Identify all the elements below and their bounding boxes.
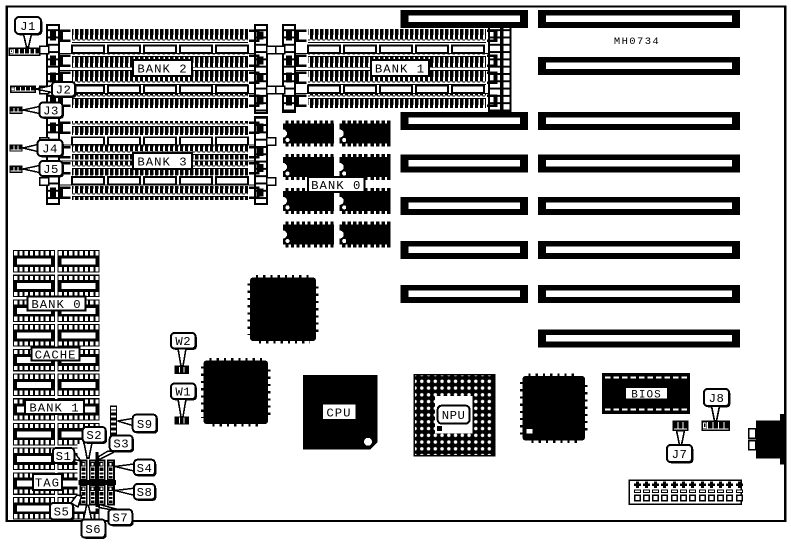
svg-text:J8: J8 [709, 392, 725, 406]
svg-text:MH0734: MH0734 [614, 36, 660, 48]
svg-text:W2: W2 [175, 335, 191, 349]
svg-text:S4: S4 [137, 462, 153, 476]
svg-text:S5: S5 [54, 506, 70, 520]
svg-text:J7: J7 [672, 448, 688, 462]
svg-text:S3: S3 [113, 438, 129, 452]
svg-text:S9: S9 [137, 418, 153, 432]
svg-text:S1: S1 [56, 450, 72, 464]
svg-text:J3: J3 [43, 104, 59, 118]
svg-text:S8: S8 [137, 486, 153, 500]
svg-text:J1: J1 [20, 20, 36, 34]
svg-text:W1: W1 [175, 386, 191, 400]
svg-text:J5: J5 [43, 163, 59, 177]
svg-text:CPU: CPU [326, 406, 351, 420]
svg-text:BANK 2: BANK 2 [137, 62, 187, 76]
svg-text:BANK 1: BANK 1 [29, 401, 79, 415]
svg-text:NPU: NPU [442, 409, 466, 423]
svg-text:S2: S2 [86, 429, 102, 443]
svg-text:CACHE: CACHE [35, 348, 77, 362]
svg-text:J2: J2 [56, 84, 72, 98]
svg-text:BANK 1: BANK 1 [375, 62, 425, 76]
svg-text:BANK 3: BANK 3 [137, 155, 187, 169]
svg-text:S6: S6 [85, 523, 101, 537]
svg-text:BANK 0: BANK 0 [311, 179, 361, 193]
svg-text:S7: S7 [112, 512, 128, 526]
svg-text:TAG: TAG [35, 476, 60, 490]
svg-text:J4: J4 [42, 142, 58, 156]
svg-text:BANK 0: BANK 0 [31, 298, 81, 312]
svg-text:BIOS: BIOS [631, 390, 661, 402]
